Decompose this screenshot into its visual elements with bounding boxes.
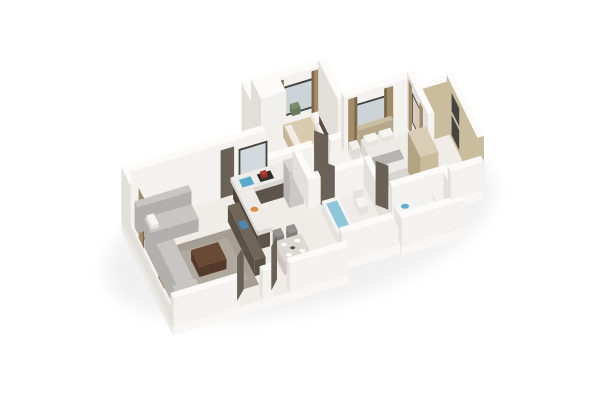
bath2-sink [401, 204, 409, 209]
dining-plate-b [294, 239, 300, 243]
island-fruit-bowl [250, 207, 258, 212]
dining-plate-d [299, 249, 305, 253]
dining-centerpiece [290, 246, 295, 249]
bedroom2-east-curtain-a [409, 79, 412, 136]
living-south-wall-side [171, 293, 174, 327]
bath2-south-wall-side [399, 213, 402, 247]
bath1-toilet-tank-side [353, 188, 355, 207]
hall-south-wall-a-side [308, 177, 321, 209]
balcony-south-wall-side [448, 166, 451, 200]
apartment-render-image [0, 0, 600, 400]
bedroom2-north-wall-side [341, 92, 344, 152]
hall-south-wall-a-side [305, 174, 308, 208]
south-wall-mid-side [260, 266, 263, 300]
dining-south-wall-side [287, 258, 290, 292]
floor-plan-svg [0, 0, 600, 400]
bedroom2-door [376, 161, 389, 210]
bedroom2-curtain-left-fold [355, 97, 358, 148]
dining-plate-a [281, 243, 287, 247]
dining-plate-c [286, 253, 292, 257]
utility-door [221, 146, 235, 198]
bedroom2-south-wall-side [389, 181, 392, 215]
